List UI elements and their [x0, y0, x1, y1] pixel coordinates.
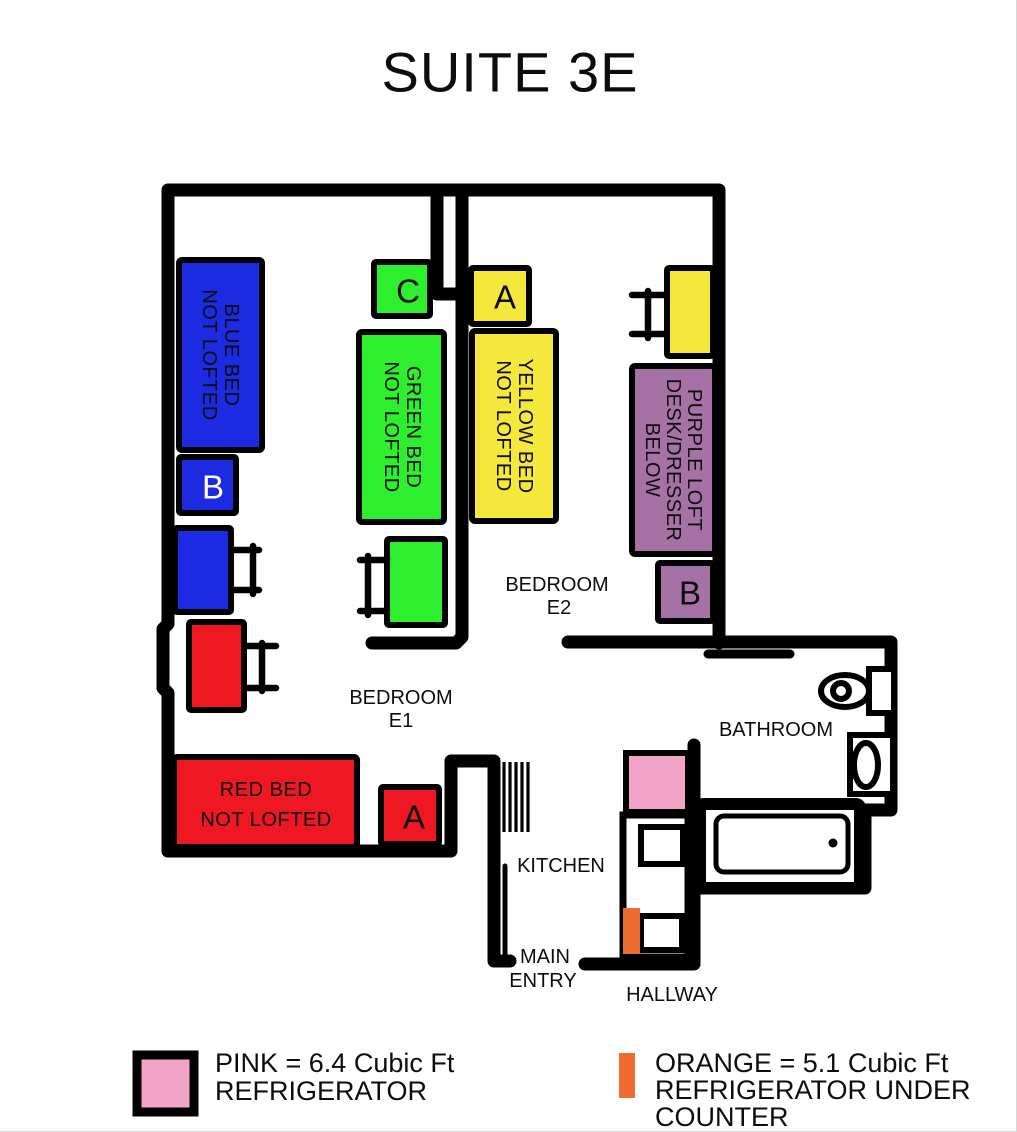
purple-loft-label-line3: BELOW [641, 423, 663, 498]
hallway-label: HALLWAY [626, 984, 718, 1006]
yellow-desk-chair-icon [632, 291, 665, 338]
toilet-tank-icon [869, 669, 894, 713]
green-desk-chair-icon [360, 556, 387, 615]
bathroom-fixtures [700, 669, 894, 888]
purple-closet-letter: B [679, 575, 701, 612]
kitchen-cabinet-icon [641, 916, 682, 950]
main-entry-label-line1: MAIN [520, 946, 570, 968]
blue-bed-label-line2: NOT LOFTED [198, 289, 220, 420]
toilet-flush-icon [833, 683, 849, 699]
kitchen-label: KITCHEN [517, 855, 605, 877]
legend-orange-line2: REFRIGERATOR UNDER [655, 1075, 971, 1105]
legend-orange-swatch [619, 1053, 635, 1098]
kitchen-fixtures [623, 753, 688, 957]
blue-closet-letter: B [202, 469, 224, 506]
green-bed-label-line2: NOT LOFTED [380, 361, 402, 492]
green-desk [387, 539, 445, 625]
red-desk-chair-icon [246, 643, 276, 691]
yellow-desk [667, 268, 713, 356]
floor-plan-page: SUITE 3E BLUE BED NOT LOFTED B RED BED [0, 0, 1017, 1132]
floor-plan-canvas: SUITE 3E BLUE BED NOT LOFTED B RED BED [0, 0, 1017, 1132]
red-desk [189, 622, 244, 710]
yellow-bed-label-line2: NOT LOFTED [492, 360, 514, 491]
blue-desk [175, 528, 231, 612]
bedroom-e2-label-line1: BEDROOM [505, 574, 608, 596]
red-bed-label-line2: NOT LOFTED [200, 809, 331, 831]
bathroom-sink-basin-icon [854, 743, 878, 787]
yellow-bed-label-line1: YELLOW BED [514, 358, 536, 493]
legend-pink-line1: PINK = 6.4 Cubic Ft [215, 1048, 455, 1078]
legend-orange-line3: COUNTER [655, 1102, 789, 1132]
legend-pink-line2: REFRIGERATOR [215, 1076, 427, 1106]
page-title: SUITE 3E [382, 41, 639, 104]
blue-desk-chair-icon [234, 546, 259, 594]
purple-loft-label-line2: DESK/DRESSER [662, 379, 684, 542]
legend-pink-swatch [137, 1055, 194, 1112]
green-bed-label-line1: GREEN BED [402, 366, 424, 488]
bedroom-e1-label-line1: BEDROOM [349, 687, 452, 709]
bathroom-label: BATHROOM [719, 719, 833, 741]
red-bed [174, 757, 357, 847]
purple-loft-label-line1: PURPLE LOFT [683, 389, 705, 531]
bedroom-e2-furniture: A YELLOW BED NOT LOFTED PURPLE LOFT DESK… [471, 268, 715, 621]
bedroom-e1-furniture: BLUE BED NOT LOFTED B RED BED NOT LOFTED… [174, 260, 445, 847]
main-entry-label-line2: ENTRY [509, 970, 576, 992]
yellow-closet-letter: A [494, 279, 516, 316]
green-closet-letter: C [396, 273, 420, 310]
legend: PINK = 6.4 Cubic Ft REFRIGERATOR ORANGE … [137, 1048, 971, 1132]
orange-refrigerator [623, 908, 640, 954]
kitchen-counter-stripes-icon [504, 762, 528, 832]
bathtub-drain-icon [829, 839, 838, 848]
red-bed-label-line1: RED BED [220, 779, 312, 801]
kitchen-sink-icon [641, 827, 683, 864]
bedroom-e1-label-line2: E1 [389, 710, 413, 732]
red-closet-letter: A [403, 799, 425, 836]
legend-orange-line1: ORANGE = 5.1 Cubic Ft [655, 1048, 949, 1078]
pink-refrigerator [626, 753, 688, 812]
blue-bed-label-line1: BLUE BED [220, 304, 242, 407]
bedroom-e2-label-line2: E2 [547, 597, 571, 619]
